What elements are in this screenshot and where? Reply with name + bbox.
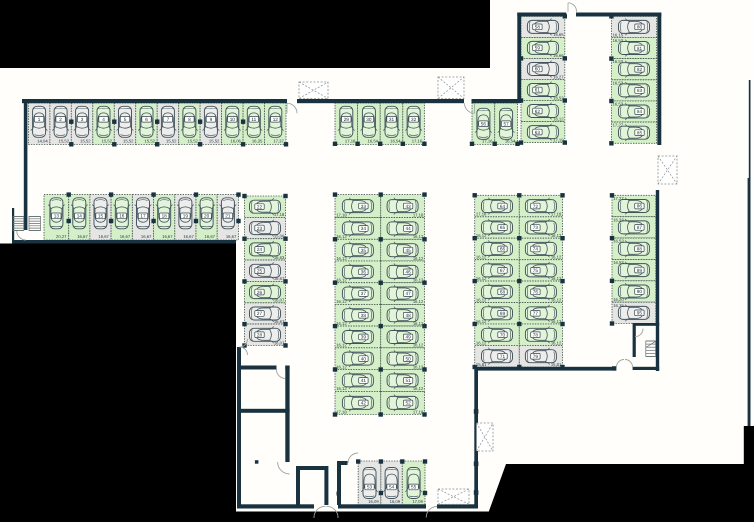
svg-text:16,12: 16,12: [551, 276, 562, 281]
svg-text:15,81: 15,81: [551, 362, 562, 367]
svg-text:16,12: 16,12: [336, 299, 347, 304]
svg-text:9: 9: [210, 117, 213, 122]
svg-text:21: 21: [225, 214, 231, 219]
svg-text:16,67: 16,67: [226, 234, 237, 239]
svg-text:58: 58: [535, 25, 541, 30]
svg-text:71: 71: [500, 354, 506, 359]
svg-text:43: 43: [405, 204, 411, 209]
svg-text:15: 15: [98, 214, 104, 219]
svg-text:16,07: 16,07: [274, 298, 285, 303]
svg-text:16,20: 16,20: [613, 297, 624, 302]
svg-text:16,53: 16,53: [613, 80, 624, 85]
svg-text:17,27: 17,27: [613, 196, 624, 201]
svg-text:16,09: 16,09: [390, 499, 401, 504]
svg-text:12: 12: [273, 117, 279, 122]
svg-text:16,12: 16,12: [476, 340, 487, 345]
svg-text:64: 64: [500, 204, 506, 209]
svg-text:16,12: 16,12: [413, 364, 424, 369]
svg-text:56: 56: [481, 122, 487, 127]
svg-text:25: 25: [257, 268, 263, 273]
svg-text:13: 13: [54, 214, 60, 219]
svg-text:48: 48: [405, 313, 411, 318]
svg-text:26: 26: [257, 290, 263, 295]
svg-text:72: 72: [533, 204, 539, 209]
svg-text:80: 80: [637, 25, 643, 30]
svg-text:16,12: 16,12: [553, 116, 564, 121]
svg-text:51: 51: [405, 378, 411, 383]
svg-text:16,53: 16,53: [613, 239, 624, 244]
svg-text:16,12: 16,12: [336, 386, 347, 391]
svg-text:24: 24: [257, 247, 263, 252]
svg-text:88: 88: [637, 246, 643, 251]
svg-text:63: 63: [535, 130, 541, 135]
svg-text:16,12: 16,12: [413, 343, 424, 348]
svg-text:34: 34: [361, 226, 367, 231]
svg-text:15,52: 15,52: [59, 139, 70, 144]
svg-text:30: 30: [366, 117, 372, 122]
svg-text:16,33: 16,33: [613, 217, 624, 222]
svg-text:16,54: 16,54: [390, 139, 401, 144]
svg-text:17,18: 17,18: [413, 212, 424, 217]
svg-text:14,04: 14,04: [37, 139, 48, 144]
svg-text:17,18: 17,18: [274, 212, 285, 217]
svg-text:89: 89: [637, 268, 643, 273]
svg-text:16,53: 16,53: [553, 95, 564, 100]
svg-text:31: 31: [389, 117, 395, 122]
svg-text:79: 79: [533, 354, 539, 359]
svg-text:19: 19: [183, 214, 189, 219]
svg-text:16,63: 16,63: [274, 255, 285, 260]
svg-text:16,12: 16,12: [551, 319, 562, 324]
svg-text:17,18: 17,18: [336, 212, 347, 217]
svg-text:16,12: 16,12: [413, 278, 424, 283]
svg-text:15,52: 15,52: [102, 139, 113, 144]
svg-text:16,09: 16,09: [368, 499, 379, 504]
svg-text:32: 32: [411, 117, 417, 122]
svg-text:16,66: 16,66: [553, 53, 564, 58]
svg-text:17,09: 17,09: [412, 499, 423, 504]
svg-text:16,12: 16,12: [551, 340, 562, 345]
svg-text:65: 65: [500, 225, 506, 230]
svg-text:16,67: 16,67: [120, 234, 131, 239]
svg-text:84: 84: [637, 109, 643, 114]
svg-text:16,67: 16,67: [205, 234, 216, 239]
svg-text:10: 10: [230, 117, 236, 122]
svg-text:44: 44: [405, 226, 411, 231]
svg-text:7: 7: [167, 117, 170, 122]
svg-text:41: 41: [361, 378, 367, 383]
svg-text:90: 90: [637, 289, 643, 294]
svg-text:70: 70: [500, 332, 506, 337]
svg-text:95: 95: [637, 311, 643, 316]
svg-text:16: 16: [119, 214, 125, 219]
svg-text:23: 23: [257, 226, 263, 231]
svg-text:16,12: 16,12: [336, 321, 347, 326]
svg-text:15,52: 15,52: [145, 139, 156, 144]
svg-text:17,16: 17,16: [482, 139, 493, 144]
svg-text:16,54: 16,54: [505, 139, 516, 144]
svg-text:16,12: 16,12: [476, 276, 487, 281]
svg-text:14: 14: [77, 214, 83, 219]
svg-text:59: 59: [535, 46, 541, 51]
svg-text:53: 53: [367, 485, 373, 490]
svg-text:33: 33: [361, 204, 367, 209]
svg-text:85: 85: [637, 130, 643, 135]
svg-text:16,06: 16,06: [230, 139, 241, 144]
svg-text:27: 27: [257, 311, 263, 316]
svg-text:66: 66: [500, 247, 506, 252]
svg-text:67: 67: [500, 268, 506, 273]
svg-text:16,12: 16,12: [336, 234, 347, 239]
svg-text:60: 60: [535, 67, 541, 72]
svg-text:16,67: 16,67: [141, 234, 152, 239]
svg-text:16,12: 16,12: [413, 386, 424, 391]
svg-text:76: 76: [533, 290, 539, 295]
svg-text:17,37: 17,37: [273, 139, 284, 144]
svg-text:17,18: 17,18: [336, 409, 347, 414]
svg-text:81: 81: [637, 46, 643, 51]
svg-text:18: 18: [162, 214, 168, 219]
svg-text:16,53: 16,53: [613, 260, 624, 265]
svg-text:83: 83: [637, 88, 643, 93]
svg-text:16,12: 16,12: [551, 297, 562, 302]
svg-text:16,12: 16,12: [336, 278, 347, 283]
svg-text:16,12: 16,12: [476, 319, 487, 324]
svg-text:75: 75: [533, 268, 539, 273]
svg-text:16,67: 16,67: [183, 234, 194, 239]
svg-text:39: 39: [361, 335, 367, 340]
svg-text:57: 57: [503, 122, 509, 127]
svg-text:16,67: 16,67: [98, 234, 109, 239]
svg-text:3: 3: [81, 117, 84, 122]
svg-text:86: 86: [637, 204, 643, 209]
svg-text:87: 87: [637, 225, 643, 230]
svg-text:15,52: 15,52: [80, 139, 91, 144]
svg-text:16,12: 16,12: [413, 299, 424, 304]
svg-text:20,27: 20,27: [56, 234, 67, 239]
svg-text:16,35: 16,35: [252, 139, 263, 144]
svg-text:16,67: 16,67: [274, 319, 285, 324]
svg-text:78: 78: [533, 332, 539, 337]
svg-text:16,53: 16,53: [613, 59, 624, 64]
svg-text:8: 8: [188, 117, 191, 122]
svg-text:16,12: 16,12: [476, 255, 487, 260]
svg-text:16,12: 16,12: [336, 256, 347, 261]
svg-text:20: 20: [204, 214, 210, 219]
svg-text:46: 46: [405, 270, 411, 275]
svg-text:16,12: 16,12: [476, 297, 487, 302]
svg-text:17,16: 17,16: [345, 139, 356, 144]
svg-text:45: 45: [405, 248, 411, 253]
svg-text:68: 68: [500, 290, 506, 295]
svg-text:15,52: 15,52: [123, 139, 134, 144]
svg-text:15,52: 15,52: [209, 139, 220, 144]
svg-text:15,52: 15,52: [187, 139, 198, 144]
svg-text:16,65: 16,65: [553, 32, 564, 37]
svg-text:16,12: 16,12: [551, 255, 562, 260]
svg-text:15,81: 15,81: [476, 362, 487, 367]
svg-text:77: 77: [533, 311, 539, 316]
svg-text:16,12: 16,12: [413, 234, 424, 239]
svg-text:47: 47: [405, 291, 411, 296]
svg-text:15,00: 15,00: [274, 234, 285, 239]
svg-text:17,18: 17,18: [413, 409, 424, 414]
svg-text:16,53: 16,53: [613, 102, 624, 107]
svg-text:16,12: 16,12: [413, 321, 424, 326]
svg-text:16,67: 16,67: [77, 234, 88, 239]
svg-text:17,19: 17,19: [553, 137, 564, 142]
svg-text:62: 62: [535, 109, 541, 114]
svg-text:54: 54: [389, 485, 395, 490]
svg-text:22: 22: [257, 204, 263, 209]
svg-text:17,16: 17,16: [476, 212, 487, 217]
svg-text:15,52: 15,52: [166, 139, 177, 144]
svg-text:49: 49: [405, 335, 411, 340]
svg-text:17,18: 17,18: [551, 212, 562, 217]
svg-text:11: 11: [251, 117, 256, 122]
svg-text:17: 17: [140, 214, 146, 219]
svg-text:16,15: 16,15: [613, 303, 624, 308]
svg-text:74: 74: [533, 247, 539, 252]
svg-text:2: 2: [59, 117, 62, 122]
svg-text:29: 29: [344, 117, 350, 122]
svg-text:16,12: 16,12: [413, 256, 424, 261]
svg-text:5: 5: [124, 117, 127, 122]
svg-text:16,67: 16,67: [162, 234, 173, 239]
svg-text:6: 6: [145, 117, 148, 122]
svg-text:16,15: 16,15: [613, 32, 624, 37]
svg-text:52: 52: [405, 401, 411, 406]
svg-text:42: 42: [361, 401, 367, 406]
svg-text:16,54: 16,54: [368, 139, 379, 144]
svg-text:69: 69: [500, 311, 506, 316]
svg-text:16,12: 16,12: [336, 364, 347, 369]
svg-text:35: 35: [361, 248, 367, 253]
svg-text:37: 37: [361, 291, 367, 296]
svg-text:73: 73: [533, 225, 539, 230]
svg-text:16,12: 16,12: [476, 233, 487, 238]
svg-text:82: 82: [637, 67, 643, 72]
svg-text:36: 36: [361, 270, 367, 275]
svg-text:50: 50: [405, 356, 411, 361]
svg-text:4: 4: [102, 117, 105, 122]
svg-text:16,67: 16,67: [274, 276, 285, 281]
svg-text:55: 55: [411, 485, 417, 490]
svg-text:16,12: 16,12: [551, 233, 562, 238]
svg-text:61: 61: [535, 88, 541, 93]
svg-text:16,12: 16,12: [336, 343, 347, 348]
svg-text:17,16: 17,16: [412, 139, 423, 144]
svg-text:17,27: 17,27: [613, 123, 624, 128]
svg-text:28: 28: [257, 333, 263, 338]
svg-text:38: 38: [361, 313, 367, 318]
svg-text:16,53: 16,53: [613, 38, 624, 43]
svg-text:1: 1: [38, 117, 41, 122]
svg-text:40: 40: [361, 356, 367, 361]
svg-text:16,07: 16,07: [274, 340, 285, 345]
svg-text:16,27: 16,27: [553, 74, 564, 79]
